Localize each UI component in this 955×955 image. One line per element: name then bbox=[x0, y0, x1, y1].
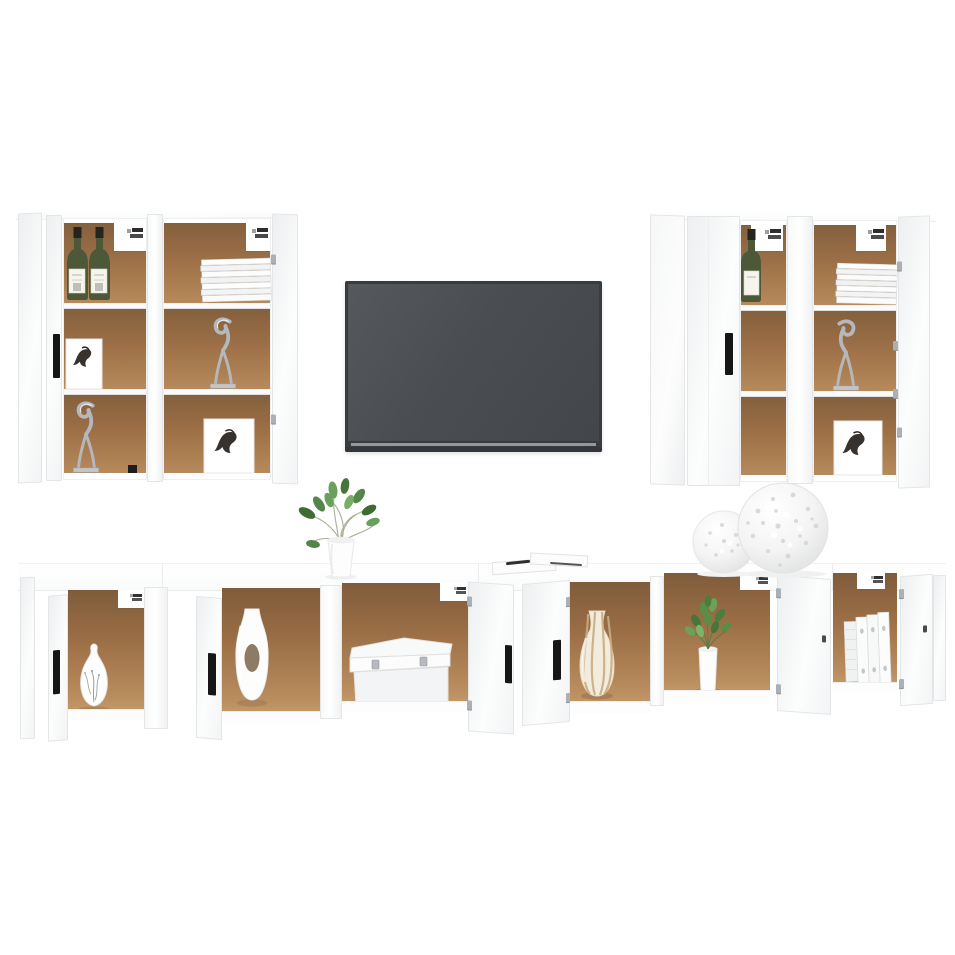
magazine-stack bbox=[201, 258, 272, 303]
bench-compartment-branch-vase bbox=[68, 590, 144, 720]
compartment-floor bbox=[664, 690, 770, 703]
compartment-floor bbox=[833, 682, 897, 693]
cabinet-side-panel bbox=[650, 214, 685, 485]
mount-notch bbox=[114, 219, 146, 251]
bench-open-door-1 bbox=[48, 594, 68, 742]
ring-binders bbox=[843, 613, 890, 687]
door-handle bbox=[923, 625, 927, 632]
bench-compartment-plant bbox=[664, 573, 770, 703]
wall-bracket-icon bbox=[756, 577, 768, 585]
wall-cabinet-left-group bbox=[16, 210, 300, 490]
bench-divider bbox=[320, 585, 342, 719]
open-door-left-outer bbox=[18, 213, 42, 484]
wine-bottles bbox=[67, 227, 109, 303]
wall-cabinet-1 bbox=[63, 218, 147, 480]
wall-bracket-icon bbox=[454, 587, 466, 595]
compartment-floor bbox=[222, 711, 320, 724]
door-seam bbox=[708, 217, 709, 485]
hinge bbox=[776, 684, 781, 693]
decor-spheres bbox=[688, 481, 836, 578]
hinge bbox=[467, 700, 472, 709]
wall-bracket-icon bbox=[765, 229, 781, 240]
bench-open-door-5 bbox=[777, 575, 831, 715]
hinge bbox=[897, 427, 902, 436]
hinge bbox=[467, 596, 472, 605]
horse-artwork bbox=[66, 339, 102, 389]
storage-box bbox=[344, 634, 458, 708]
branch-vase bbox=[72, 640, 116, 720]
product-photo-scene bbox=[0, 0, 955, 955]
magazine-stack bbox=[836, 263, 898, 305]
bench-open-door-3 bbox=[468, 581, 514, 734]
horse-artwork bbox=[204, 419, 254, 473]
bench-compartment-binders bbox=[833, 573, 897, 693]
tv-screen bbox=[348, 284, 599, 441]
interior-section bbox=[741, 397, 786, 475]
bench-open-door-2 bbox=[196, 596, 222, 740]
hinge bbox=[899, 679, 904, 688]
hinge bbox=[776, 588, 781, 597]
wall-cabinet-4 bbox=[813, 220, 897, 482]
cat-sculpture bbox=[206, 315, 240, 389]
wall-bracket-icon bbox=[871, 576, 883, 584]
mount-notch bbox=[246, 219, 270, 251]
tv bbox=[345, 281, 602, 452]
door-handle bbox=[725, 333, 733, 375]
hinge bbox=[899, 589, 904, 598]
open-door-right bbox=[898, 215, 930, 488]
bench-divider bbox=[650, 576, 664, 706]
cabinet-divider bbox=[787, 216, 813, 484]
door-handle bbox=[553, 640, 561, 681]
door-handle bbox=[53, 650, 60, 695]
potted-plant bbox=[668, 587, 746, 695]
cat-sculpture bbox=[69, 399, 103, 473]
open-door-left-face bbox=[46, 215, 62, 481]
wall-bracket-icon bbox=[252, 228, 268, 239]
bench-divider bbox=[144, 587, 168, 729]
wall-cabinet-right-group bbox=[650, 212, 942, 492]
bench-end-panel-left bbox=[20, 577, 35, 740]
door-handle bbox=[53, 334, 60, 378]
bench-open-door-6 bbox=[900, 574, 933, 706]
wall-cabinet-3 bbox=[740, 220, 787, 482]
cat-sculpture bbox=[829, 317, 863, 391]
compartment-floor bbox=[342, 701, 468, 712]
wall-bracket-icon bbox=[127, 228, 143, 239]
tv-frame-bottom bbox=[345, 447, 602, 452]
mount-notch bbox=[118, 590, 144, 608]
mount-notch bbox=[856, 221, 886, 251]
tall-oval-vase bbox=[232, 606, 272, 710]
bench-open-door-4 bbox=[522, 580, 570, 726]
tv-bench bbox=[18, 561, 946, 743]
open-door-right bbox=[272, 214, 298, 485]
wine-bottle bbox=[741, 229, 761, 305]
cabinet-divider bbox=[147, 214, 163, 482]
horse-artwork bbox=[834, 421, 882, 475]
door-handle bbox=[822, 635, 826, 642]
decor-papers bbox=[486, 548, 596, 578]
bench-compartment-striped-vase bbox=[570, 582, 650, 714]
wall-bracket-icon bbox=[130, 594, 142, 602]
hinge bbox=[271, 415, 276, 424]
bench-compartment-oval-vase bbox=[222, 588, 320, 724]
bench-compartment-box bbox=[342, 583, 468, 712]
tv-bottom-strip bbox=[351, 443, 596, 446]
door-catch bbox=[128, 465, 137, 473]
compartment-floor bbox=[570, 701, 650, 714]
compartment-floor bbox=[68, 709, 144, 720]
door-handle bbox=[505, 645, 512, 683]
door-handle bbox=[208, 653, 216, 696]
striped-vase bbox=[576, 608, 618, 702]
wall-cabinet-2 bbox=[163, 218, 271, 480]
hinge bbox=[271, 255, 276, 264]
mount-notch bbox=[857, 573, 885, 589]
wall-bracket-icon bbox=[868, 229, 884, 240]
closed-door bbox=[687, 216, 740, 486]
interior-section bbox=[741, 311, 786, 391]
bench-end-panel-right bbox=[933, 575, 946, 701]
mount-notch bbox=[440, 583, 468, 601]
decor-plant-large bbox=[283, 464, 393, 580]
hinge bbox=[897, 261, 902, 270]
